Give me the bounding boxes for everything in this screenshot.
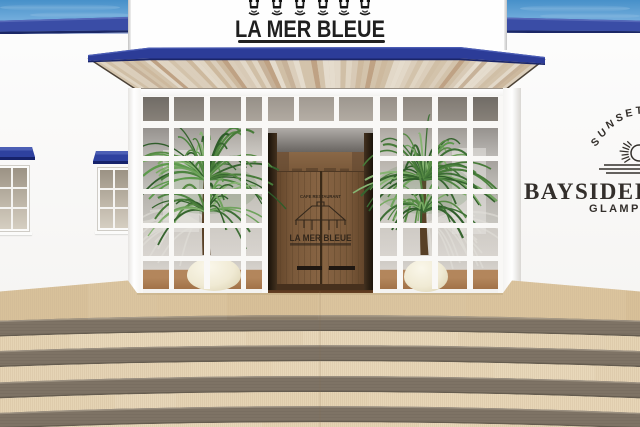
svg-text:BAYSIDE: BAYSIDE: [524, 179, 635, 204]
svg-text:B: B: [635, 179, 640, 204]
svg-text:N: N: [604, 118, 616, 132]
svg-text:GLAMP: GLAMP: [589, 203, 640, 215]
svg-text:S: S: [614, 111, 624, 125]
